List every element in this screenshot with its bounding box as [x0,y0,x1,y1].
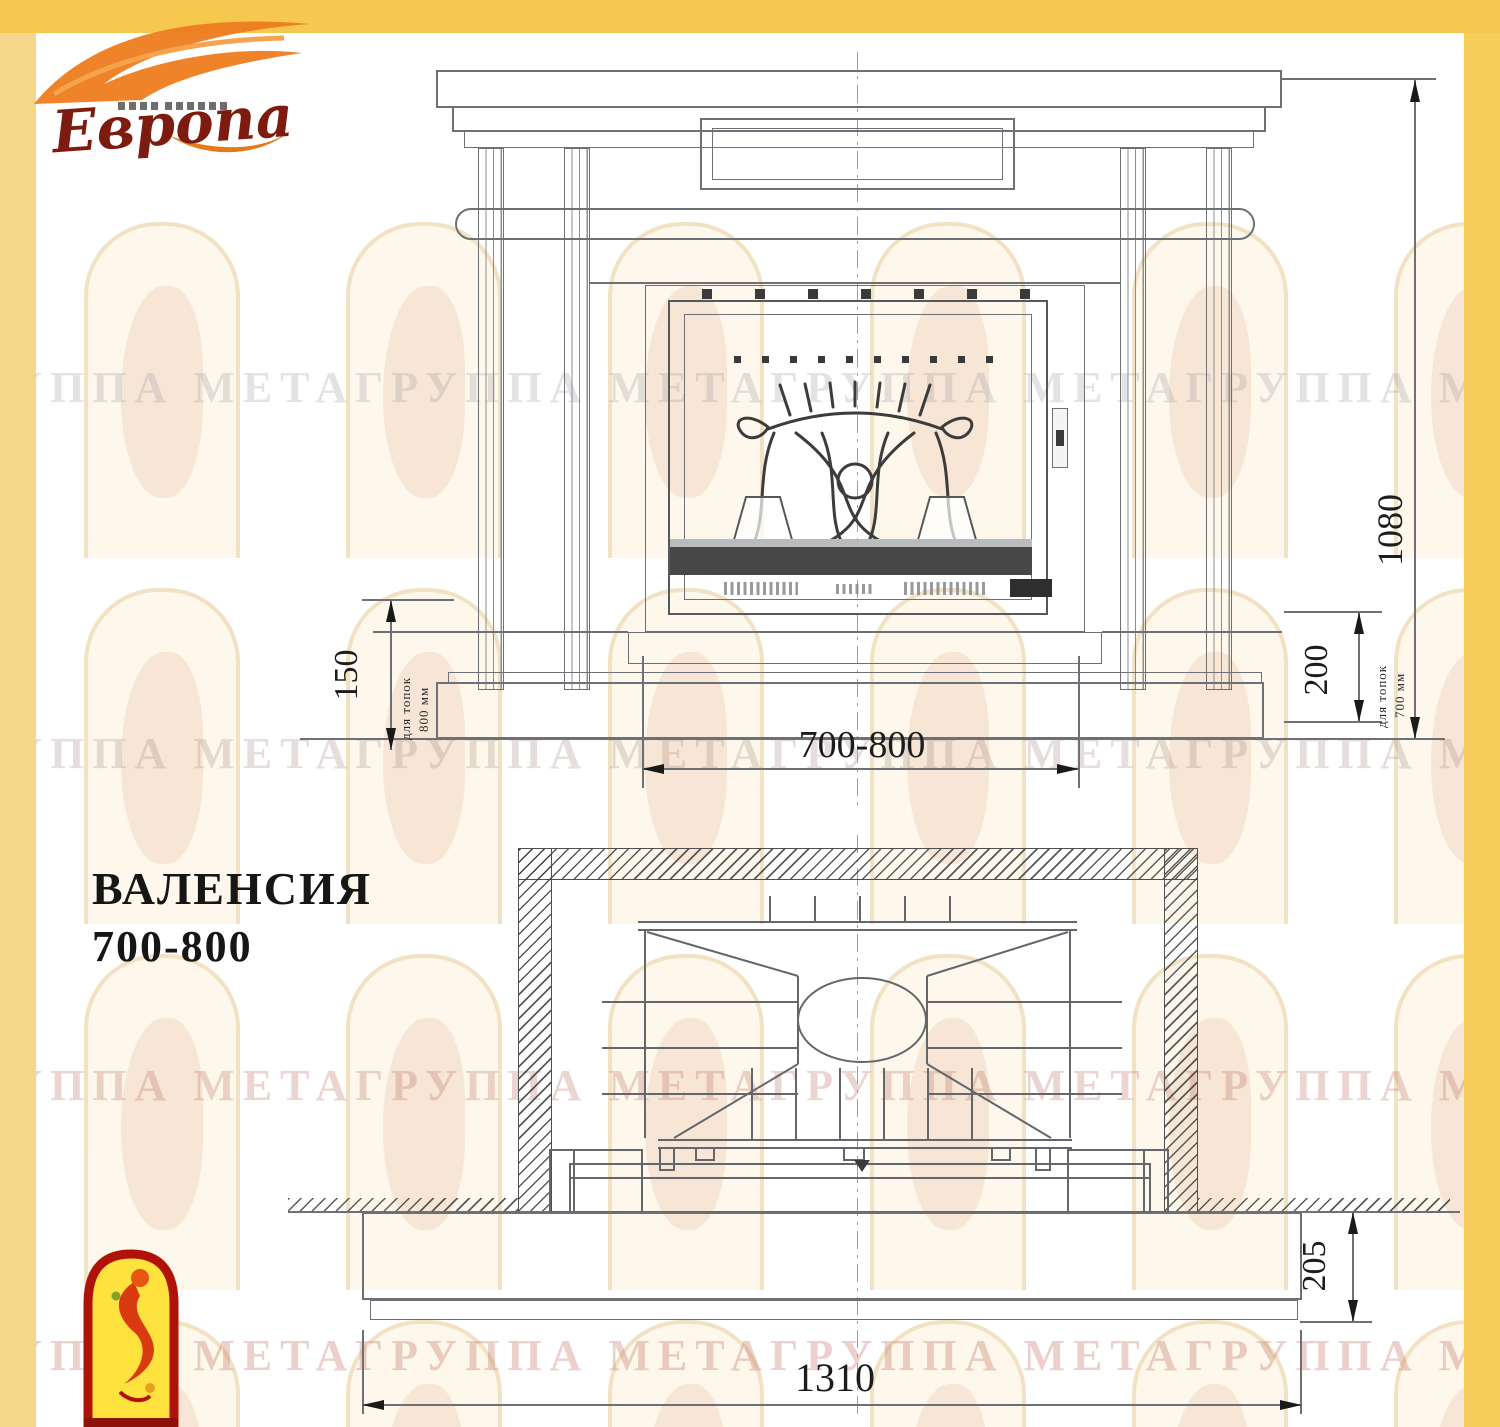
frieze-panel-inner [712,128,1003,180]
dim-note: для топок [1374,622,1390,728]
dim-line-1080 [1414,80,1416,739]
hearth-bench [628,632,1102,664]
air-hole [902,356,909,363]
dim-arrow [1354,612,1364,634]
flame-figure-head [131,1269,149,1287]
drawing-sheet: ГРУППА МЕТАГРУППА МЕТАГРУППА МЕТАГРУППА … [0,0,1500,1427]
air-hole [986,356,993,363]
dim-arrow [386,728,396,750]
firebox-grate-drawing [668,375,1048,605]
extension-line [1300,1321,1372,1323]
dim-arrow [1280,1400,1302,1410]
air-hole [734,356,741,363]
dim-note: 700 мм [1392,632,1408,718]
watermark-arch [84,954,240,1290]
dim-value-slab-width: 1310 [700,1358,970,1398]
arch-base [84,1418,178,1427]
extension-line [1284,611,1382,613]
mantel-shelf-top [436,70,1282,108]
dim-arrow [642,764,664,774]
dim-line-700-800 [642,768,1079,770]
maker-stamp [724,582,798,595]
air-hole [762,356,769,363]
torus-band [455,208,1255,240]
air-hole [930,356,937,363]
control-plate [1010,579,1052,597]
dim-arrow [386,600,396,622]
dim-arrow [1348,1300,1358,1322]
air-hole [846,356,853,363]
dim-note: для топок [398,628,414,740]
dim-value-plinth-150: 150 [330,620,370,730]
dim-note: 800 мм [416,640,432,732]
ground-hatch-left [288,1198,518,1211]
dim-value-height: 1080 [1372,450,1412,610]
dim-value-plinth-200: 200 [1300,615,1340,725]
dim-arrow [1348,1212,1358,1234]
plan-interior-drawing [540,880,1180,1215]
maker-stamp [904,582,988,595]
lintel-line [590,282,1120,284]
air-hole [790,356,797,363]
watermark-arch-figure [121,1018,204,1230]
dim-value-opening-width: 700-800 [742,726,982,764]
hearth-slab [362,1212,1302,1300]
door-handle-grip [1056,430,1064,446]
dim-arrow [1057,764,1079,774]
wall-back [518,848,1198,880]
dim-arrow [1410,717,1420,739]
model-size: 700-800 [92,921,372,972]
dim-value-slab-depth: 205 [1298,1216,1338,1316]
dim-arrow [1410,80,1420,102]
model-title: ВАЛЕНСИЯ 700-800 [92,862,372,972]
europa-logo: Европа [22,6,322,161]
dim-line-1310 [362,1404,1302,1406]
arch-window-icon [88,1254,174,1427]
dim-arrow [1354,700,1364,722]
logo-accent-dot [145,1383,155,1393]
air-hole [874,356,881,363]
hearth-slab-step [370,1300,1298,1320]
logo-accent-dot [112,1292,121,1301]
extension-line [362,599,454,601]
maker-stamp [836,584,872,594]
ground-hatch-right [1198,1198,1450,1211]
bench-extension-line-right [1102,631,1282,633]
air-hole [818,356,825,363]
meta-logo [80,1242,182,1427]
sheet-border-left [0,0,36,1427]
air-hole [958,356,965,363]
model-name: ВАЛЕНСИЯ [92,862,372,915]
sheet-border-right [1464,0,1500,1427]
dim-arrow [362,1400,384,1410]
